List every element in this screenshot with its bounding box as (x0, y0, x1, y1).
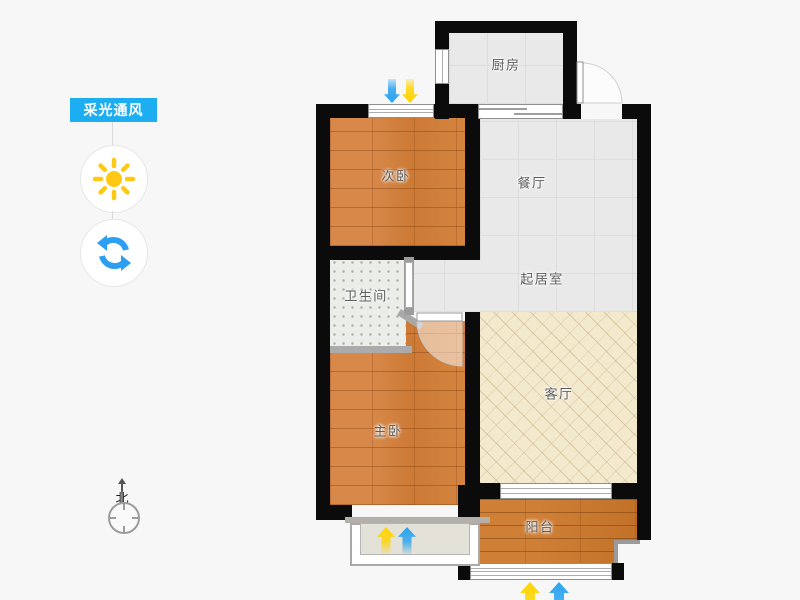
room-label-sitting: 起居室 (520, 273, 564, 286)
room-label-kitchen: 厨房 (491, 59, 520, 72)
room-sitting-floor (406, 260, 482, 312)
wall-segment (480, 483, 500, 499)
room-label-master-bedroom: 主卧 (373, 425, 402, 438)
up-arrow-yellow-icon (377, 527, 395, 554)
connector-line (112, 211, 113, 219)
wall-segment (465, 104, 480, 260)
entry-door-arc (582, 63, 622, 103)
wall-segment (637, 104, 651, 540)
up-arrow-blue-icon (398, 527, 416, 554)
rotate-button[interactable] (80, 219, 148, 287)
floorplan-viewer: 厨房 次卧 餐厅 卫生间 起居室 主卧 客厅 阳台 采光通风 (0, 0, 800, 600)
compass-dial (108, 502, 140, 534)
room-label-secondary-bedroom: 次卧 (381, 170, 410, 183)
connector-line (112, 122, 113, 146)
secondary-bedroom-window (368, 104, 434, 118)
sun-icon (92, 157, 136, 201)
balcony-corner-notch (614, 540, 640, 565)
up-arrow-blue-icon (546, 582, 572, 600)
compass: 北 (100, 474, 144, 534)
living-balcony-window (500, 483, 612, 499)
rotate-icon (94, 233, 134, 273)
kitchen-sliding-door (478, 104, 563, 119)
compass-needle-tip (118, 478, 126, 484)
room-label-living: 客厅 (544, 388, 573, 401)
up-arrow-yellow-icon (517, 582, 543, 600)
wall-segment (563, 104, 581, 119)
entry-door-leaf (577, 62, 583, 103)
wall-segment (316, 104, 330, 520)
down-arrow-yellow-icon (402, 78, 418, 104)
room-label-bathroom: 卫生间 (344, 290, 388, 303)
room-label-balcony: 阳台 (525, 521, 554, 534)
wall-segment (435, 21, 577, 33)
wall-segment (612, 483, 637, 499)
room-label-dining: 餐厅 (517, 177, 546, 190)
lighting-ventilation-chip[interactable]: 采光通风 (70, 98, 157, 122)
master-door-leaf (417, 313, 462, 321)
sun-button[interactable] (80, 145, 148, 213)
wall-segment (316, 246, 465, 260)
bathroom-threshold (330, 346, 412, 353)
kitchen-window (435, 49, 449, 84)
wall-segment (610, 563, 624, 580)
balcony-window (470, 563, 612, 580)
bathroom-door (405, 262, 413, 308)
down-arrow-blue-icon (384, 78, 400, 104)
